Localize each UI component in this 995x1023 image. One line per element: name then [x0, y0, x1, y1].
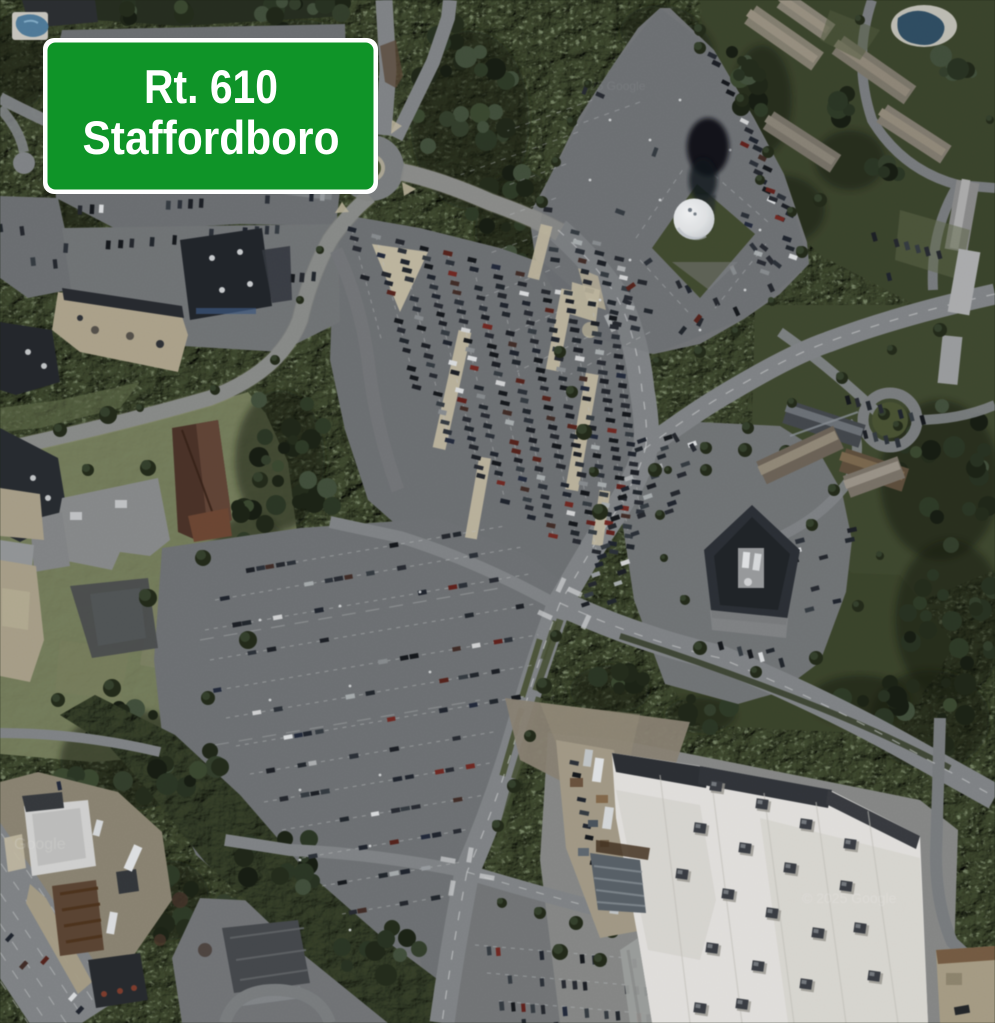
svg-text:Rt. 610: Rt. 610 [144, 60, 278, 113]
svg-text:Staffordboro: Staffordboro [83, 111, 340, 164]
